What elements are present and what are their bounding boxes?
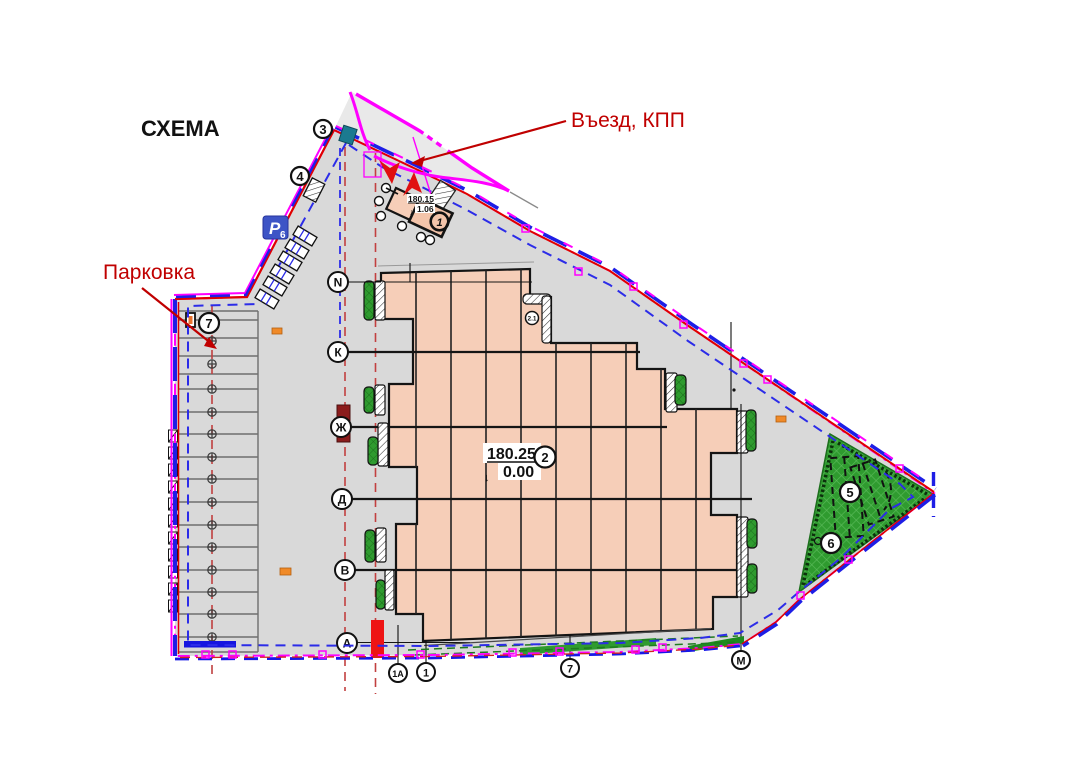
svg-text:К: К (334, 346, 342, 360)
svg-text:N: N (334, 276, 343, 290)
svg-text:2: 2 (541, 450, 548, 465)
svg-text:СХЕМА: СХЕМА (141, 116, 220, 141)
svg-text:↓: ↓ (484, 472, 490, 484)
svg-text:В: В (341, 564, 350, 578)
svg-text:0.00: 0.00 (503, 464, 534, 481)
svg-text:↓: ↓ (409, 207, 414, 217)
svg-text:1: 1 (423, 668, 429, 680)
svg-text:Д: Д (338, 493, 347, 507)
svg-text:А: А (343, 637, 352, 651)
svg-text:180.25: 180.25 (487, 446, 536, 463)
svg-text:Парковка: Парковка (103, 261, 195, 284)
svg-text:4: 4 (296, 169, 304, 184)
svg-text:6: 6 (827, 536, 834, 551)
svg-text:7: 7 (205, 316, 212, 331)
svg-text:Ж: Ж (335, 421, 347, 435)
svg-text:М: М (736, 656, 745, 668)
svg-text:5: 5 (846, 485, 853, 500)
svg-text:2.1: 2.1 (527, 316, 536, 323)
svg-text:7: 7 (567, 664, 573, 676)
svg-text:1А: 1А (392, 669, 404, 679)
svg-text:6: 6 (280, 230, 286, 241)
svg-text:Въезд, КПП: Въезд, КПП (571, 109, 685, 132)
svg-text:1.06: 1.06 (417, 204, 434, 214)
svg-text:1: 1 (436, 217, 442, 229)
svg-text:3: 3 (319, 122, 326, 137)
